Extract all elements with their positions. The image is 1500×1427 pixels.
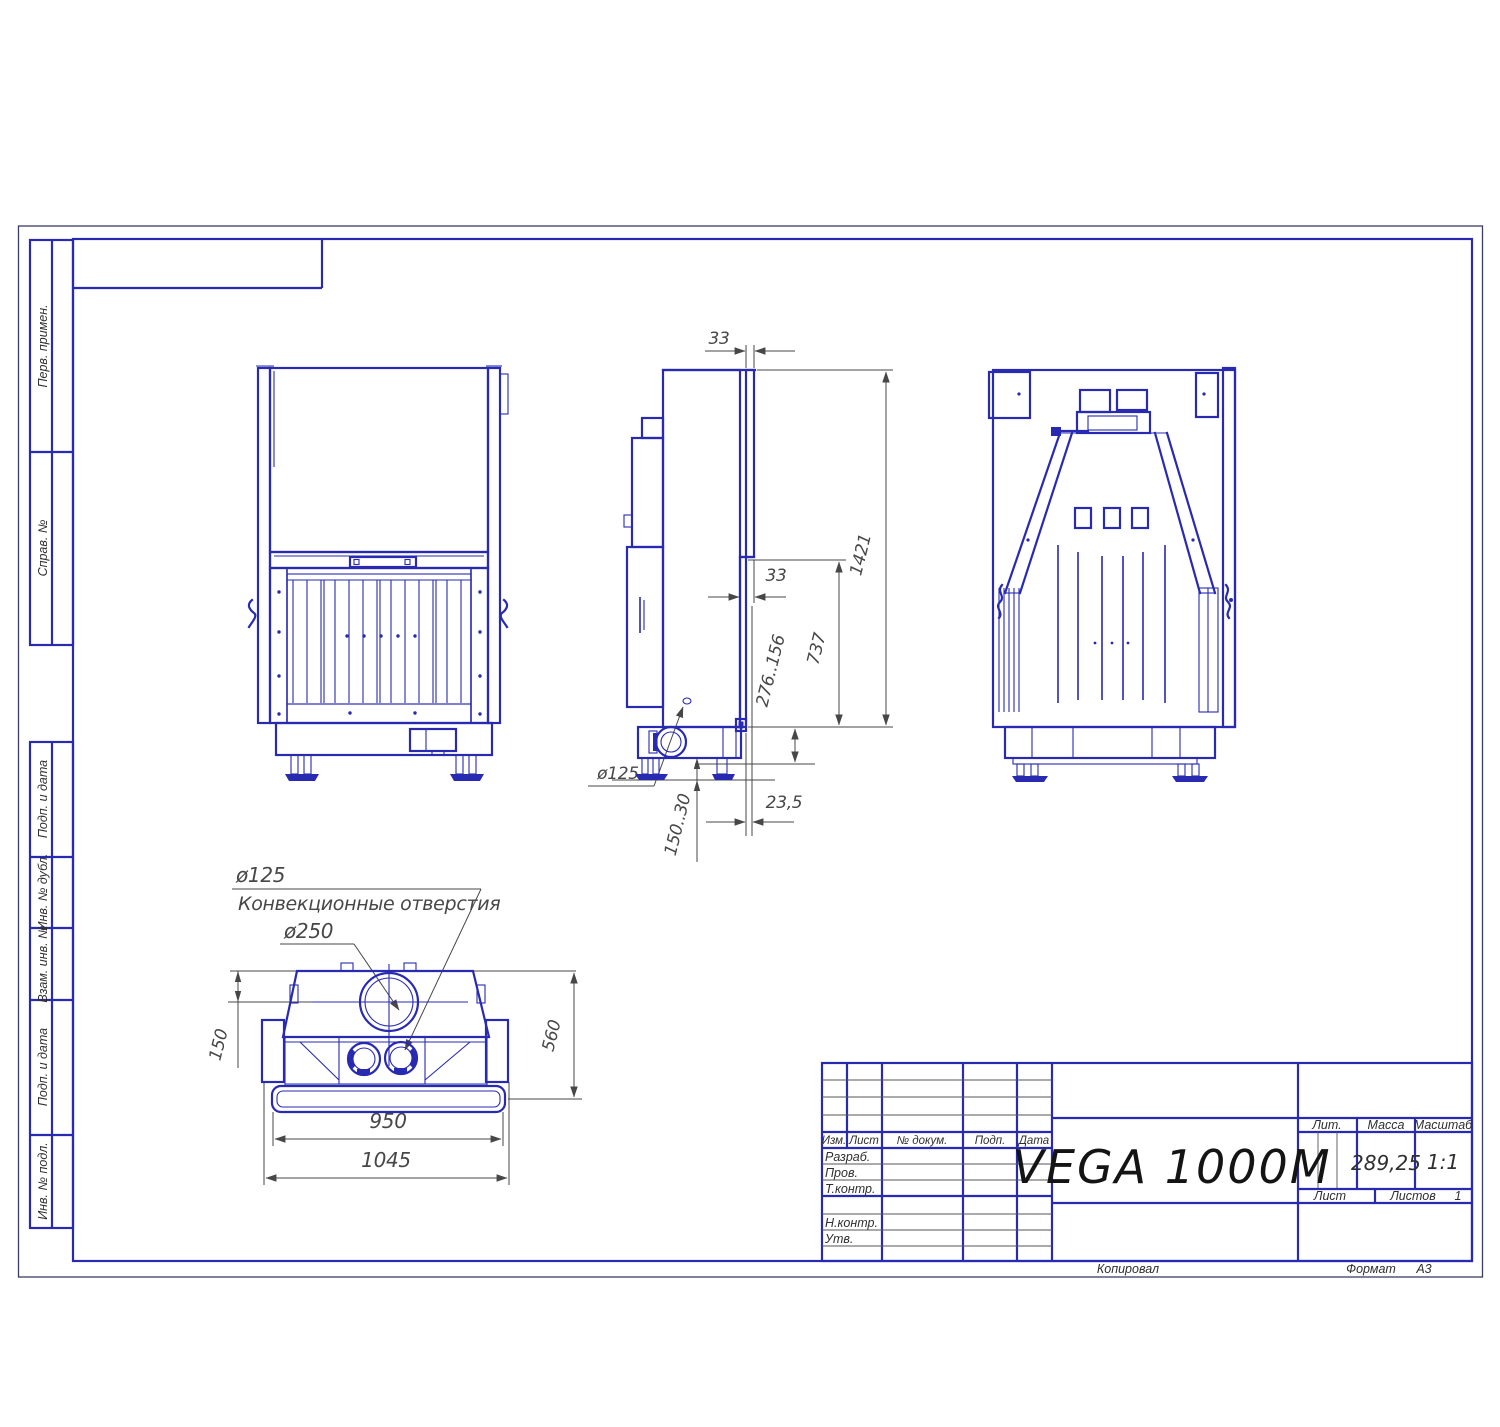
front-view: [249, 366, 508, 781]
front-left-foot: [285, 774, 319, 781]
titleblock-row-prov: Пров.: [825, 1166, 858, 1180]
sheet-frame: [19, 226, 1483, 1277]
sidebar-label-perv-primen: Перв. примен.: [36, 304, 50, 387]
sidebar-columns: Перв. примен. Справ. № Подп. и дата Инв.…: [30, 240, 73, 1228]
sidebar-label-inv-no-podl: Инв. № подл.: [36, 1142, 50, 1220]
dim-flue-dia: ø250: [283, 919, 333, 943]
front-right-handle: [501, 600, 507, 627]
side-view: [624, 370, 755, 780]
front-right-foot: [450, 774, 484, 781]
titleblock-row-nkontr: Н.контр.: [825, 1216, 878, 1230]
drawing-page: Перв. примен. Справ. № Подп. и дата Инв.…: [0, 0, 1500, 1427]
front-left-handle: [249, 600, 255, 627]
titleblock-col-list: Лист: [848, 1135, 879, 1147]
rear-right-clamp: [1226, 585, 1230, 618]
titleblock-scale-label: Масштаб: [1414, 1118, 1473, 1132]
dim-glass-depth-top: 33: [708, 329, 729, 349]
dim-convection-dia: ø125: [235, 863, 285, 887]
titleblock-col-podp: Подп.: [975, 1135, 1006, 1147]
format-label: Формат: [1346, 1262, 1396, 1276]
dim-front-offset: 23,5: [766, 793, 803, 813]
front-control-box: [410, 729, 456, 751]
drawing-sheet: Перв. примен. Справ. № Подп. и дата Инв.…: [0, 0, 1500, 1427]
sidebar-label-inv-no-dubl: Инв. № дубл.: [36, 854, 50, 931]
side-right-foot: [712, 774, 735, 780]
format-value: А3: [1415, 1262, 1431, 1276]
rear-right-foot: [1172, 776, 1208, 782]
titleblock-col-izm: Изм.: [822, 1135, 847, 1147]
titleblock-sheets-value: 1: [1455, 1189, 1462, 1203]
titleblock-col-doc: № докум.: [897, 1135, 948, 1147]
bottom-view: [262, 963, 508, 1112]
titleblock-mass-label: Масса: [1368, 1118, 1405, 1132]
dim-leg-height-range: 150..30: [661, 792, 696, 858]
side-left-foot: [635, 774, 668, 780]
dim-side-spigot-dia: ø125: [596, 764, 639, 784]
dim-overall-width: 1045: [361, 1148, 411, 1172]
titleblock-sheets-label: Листов: [1389, 1189, 1436, 1203]
dim-base-height-range: 276..156: [753, 632, 790, 708]
sidebar-label-vzam-inv-no: Взам. инв. №: [36, 925, 50, 1003]
rear-left-foot: [1012, 776, 1048, 782]
dim-lower-front-height: 737: [804, 631, 831, 667]
dim-depth: 560: [539, 1018, 566, 1053]
titleblock-row-utv: Утв.: [824, 1232, 853, 1246]
sidebar-label-podp-i-data-2: Подп. и дата: [36, 1028, 50, 1106]
sidebar-label-podp-i-data-1: Подп. и дата: [36, 760, 50, 838]
titleblock-mass-value: 289,25: [1351, 1151, 1421, 1175]
part-name: VEGA 1000M: [1012, 1140, 1331, 1194]
titleblock-row-razrab: Разраб.: [825, 1150, 870, 1164]
copied-by-label: Копировал: [1097, 1262, 1159, 1276]
dim-overall-height: 1421: [846, 532, 876, 578]
convection-holes-label: Конвекционные отверстия: [238, 893, 500, 915]
title-block: Изм. Лист № докум. Подп. Дата Разраб. Пр…: [822, 1063, 1473, 1276]
dim-flue-offset: 150: [206, 1027, 233, 1062]
rear-view: [989, 368, 1235, 782]
titleblock-scale-value: 1:1: [1427, 1150, 1459, 1174]
titleblock-lit-label: Лит.: [1311, 1118, 1341, 1132]
titleblock-row-tkontr: Т.контр.: [825, 1182, 875, 1196]
sidebar-label-sprav-no: Справ. №: [36, 519, 50, 576]
dim-ledge-depth: 33: [765, 566, 786, 586]
